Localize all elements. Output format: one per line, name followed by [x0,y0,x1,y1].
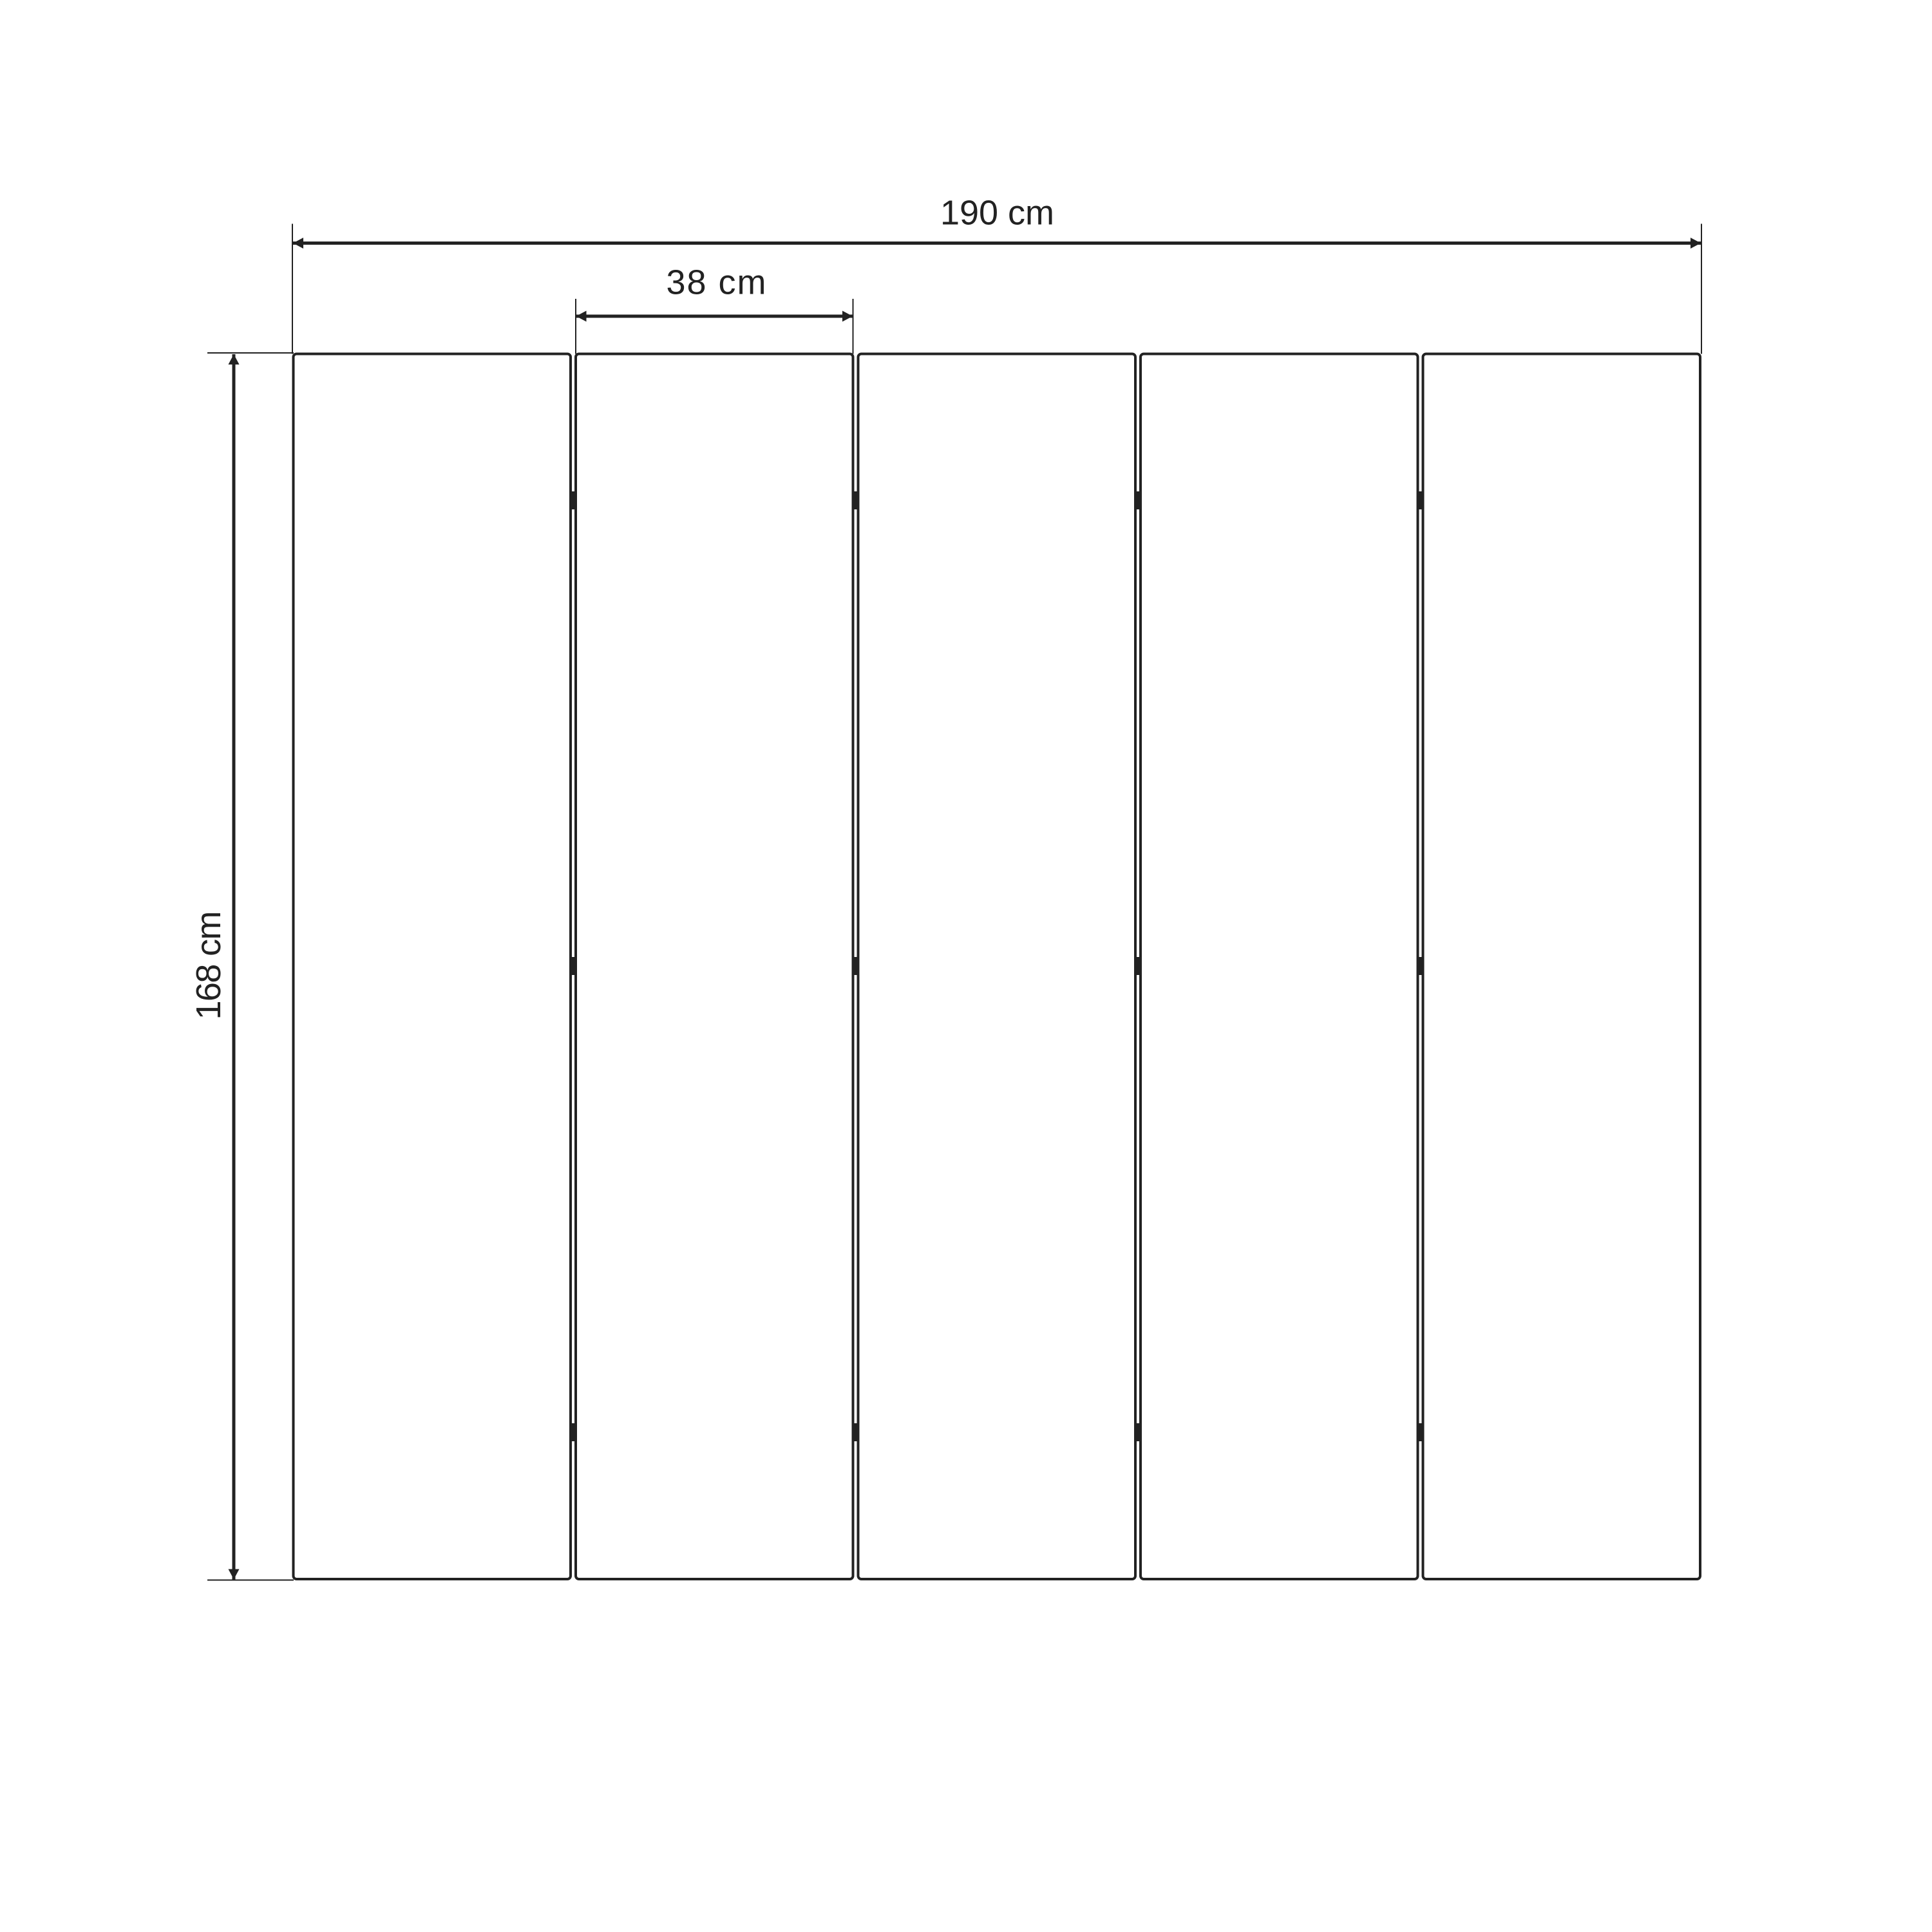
svg-text:190 cm: 190 cm [940,194,1054,232]
svg-text:38 cm: 38 cm [667,263,766,302]
svg-text:168 cm: 168 cm [189,911,228,1020]
